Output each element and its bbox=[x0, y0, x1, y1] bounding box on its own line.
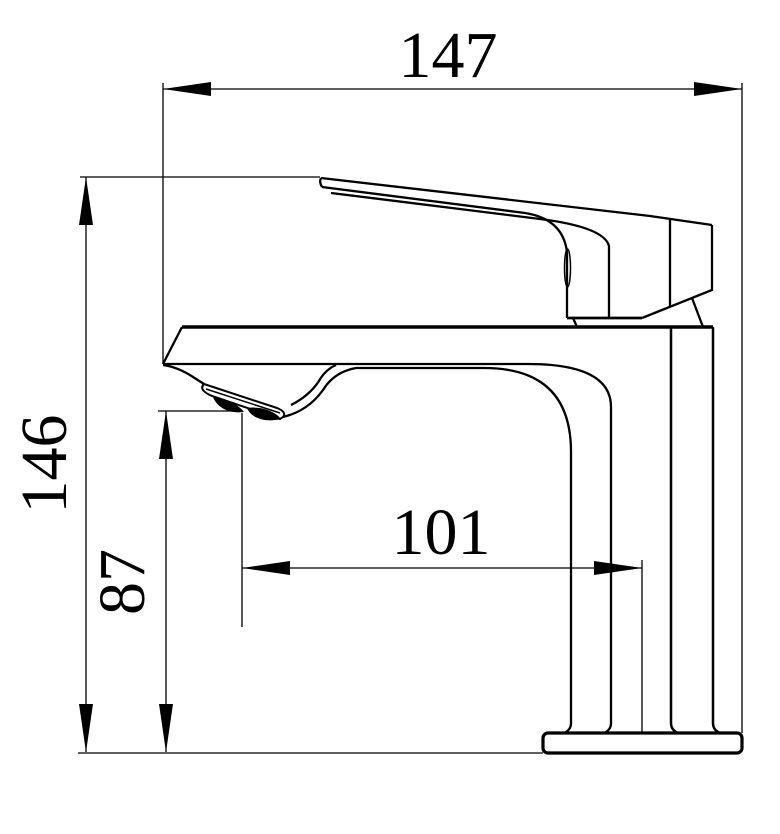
faucet-outline bbox=[163, 178, 742, 753]
arrowhead-146-top bbox=[79, 177, 93, 225]
technical-drawing-svg: 147 146 87 101 bbox=[0, 0, 780, 834]
underside-return-inner bbox=[291, 365, 336, 405]
dimension-overall-height: 146 bbox=[8, 177, 93, 752]
dimension-overall-length: 147 bbox=[163, 19, 742, 96]
arrowhead-101-left bbox=[242, 561, 290, 575]
dimension-outlet-reach: 101 bbox=[242, 496, 642, 575]
dimension-label-101: 101 bbox=[392, 496, 491, 569]
lever-tip-edge bbox=[320, 178, 322, 187]
underside-return-outer bbox=[283, 368, 356, 417]
base-flange bbox=[543, 733, 742, 753]
column-inner-right-edge bbox=[671, 327, 678, 733]
aerator-outlet bbox=[202, 384, 284, 420]
handle-lever bbox=[320, 178, 712, 318]
faucet-column bbox=[671, 327, 720, 733]
dimension-label-147: 147 bbox=[399, 19, 498, 92]
spout-underside-dip bbox=[163, 365, 204, 384]
spout-nose-chamfer bbox=[163, 327, 182, 364]
dimension-label-146: 146 bbox=[8, 415, 81, 514]
dimension-label-87: 87 bbox=[86, 549, 159, 615]
column-outer-right-edge bbox=[713, 327, 720, 733]
extension-lines bbox=[78, 83, 742, 753]
dimension-outlet-height: 87 bbox=[86, 411, 173, 752]
handle-block-right-edge bbox=[642, 225, 712, 318]
drawing-sheet: 147 146 87 101 bbox=[0, 0, 780, 834]
handle-neck bbox=[565, 220, 713, 327]
arrowhead-87-bottom bbox=[159, 704, 173, 752]
arrowhead-147-left bbox=[163, 82, 211, 96]
cartridge-back-edge bbox=[692, 298, 703, 327]
arrowhead-146-bottom bbox=[79, 704, 93, 752]
base-flange-outline bbox=[543, 733, 742, 753]
arrowhead-87-top bbox=[159, 411, 173, 459]
lever-top-edge bbox=[321, 178, 712, 225]
arrowhead-147-right bbox=[694, 82, 742, 96]
arrowhead-101-right bbox=[594, 561, 642, 575]
underside-inner-edge bbox=[163, 364, 611, 733]
